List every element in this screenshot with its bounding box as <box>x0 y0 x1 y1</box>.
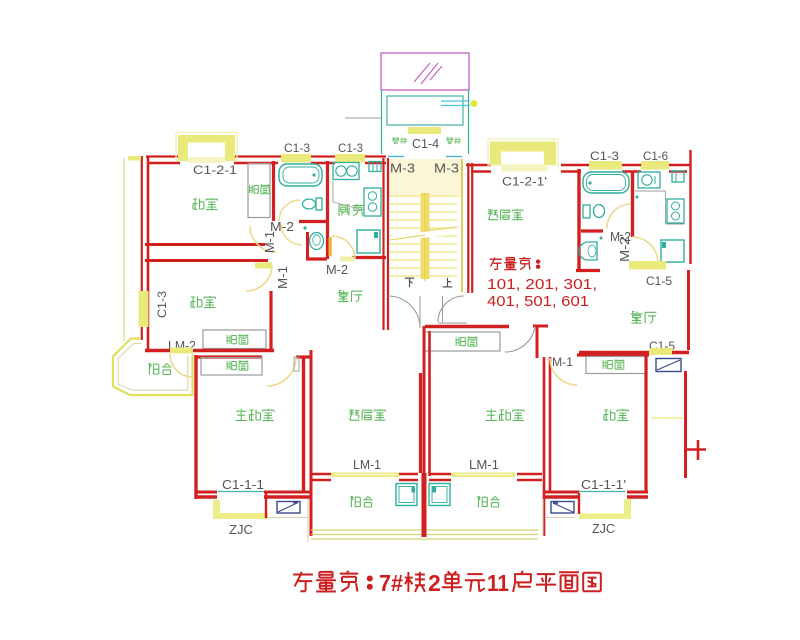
svg-text:M-3: M-3 <box>390 162 415 176</box>
svg-text:11: 11 <box>487 570 509 596</box>
svg-text:ZJC: ZJC <box>592 522 615 536</box>
svg-text:401, 501, 601: 401, 501, 601 <box>487 294 589 310</box>
svg-text:C1-1-1: C1-1-1 <box>222 478 264 492</box>
svg-text:101, 201, 301,: 101, 201, 301, <box>487 277 597 293</box>
svg-text:M-1: M-1 <box>552 355 573 369</box>
svg-text:ZJC: ZJC <box>229 523 253 537</box>
svg-text:C1-2-1': C1-2-1' <box>502 175 547 189</box>
svg-text:M-3: M-3 <box>434 162 459 176</box>
svg-text:2: 2 <box>428 570 441 596</box>
svg-text:C1-3: C1-3 <box>284 141 310 155</box>
svg-text:M-2: M-2 <box>610 230 631 244</box>
svg-text:C1-3: C1-3 <box>338 141 363 155</box>
svg-text:M-1: M-1 <box>263 231 277 253</box>
svg-text:C1-2-1: C1-2-1 <box>193 163 237 177</box>
svg-text:C1-3: C1-3 <box>155 291 169 318</box>
svg-text:M-2: M-2 <box>326 263 348 277</box>
svg-text:C1-1-1': C1-1-1' <box>581 478 626 492</box>
svg-text:C1-6: C1-6 <box>643 149 668 163</box>
svg-text:C1-5: C1-5 <box>646 274 672 288</box>
svg-text:7#: 7# <box>379 570 403 596</box>
svg-text:C1-3: C1-3 <box>590 149 619 163</box>
svg-text:M-1: M-1 <box>276 266 290 289</box>
svg-text:C1-4: C1-4 <box>412 137 439 151</box>
svg-text:LM-1: LM-1 <box>353 458 381 472</box>
svg-text:LM-1: LM-1 <box>469 458 499 472</box>
